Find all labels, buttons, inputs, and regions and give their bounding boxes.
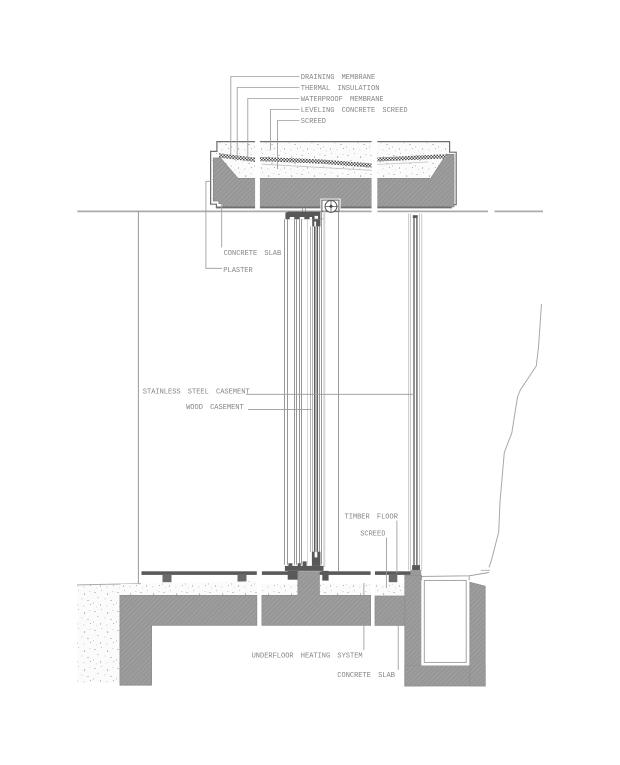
svg-text:WOOD CASEMENT: WOOD CASEMENT [186,404,244,412]
svg-text:SCREED: SCREED [360,531,385,539]
svg-text:CONCRETE SLAB: CONCRETE SLAB [337,672,395,680]
svg-text:CONCRETE SLAB: CONCRETE SLAB [224,250,282,258]
svg-text:STAINLESS STEEL CASEMENT: STAINLESS STEEL CASEMENT [143,389,250,397]
svg-text:PLASTER: PLASTER [223,267,253,275]
svg-text:TIMBER FLOOR: TIMBER FLOOR [345,514,399,522]
svg-text:DRAINING MEMBRANE: DRAINING MEMBRANE [301,74,375,82]
svg-text:WATERPROOF MEMBRANE: WATERPROOF MEMBRANE [301,96,384,104]
svg-text:SCREED: SCREED [301,118,326,126]
svg-text:LEVELING CONCRETE SCREED: LEVELING CONCRETE SCREED [301,107,408,115]
svg-text:THERMAL INSULATION: THERMAL INSULATION [301,85,380,93]
svg-text:UNDERFLOOR HEATING SYSTEM: UNDERFLOOR HEATING SYSTEM [252,653,363,661]
